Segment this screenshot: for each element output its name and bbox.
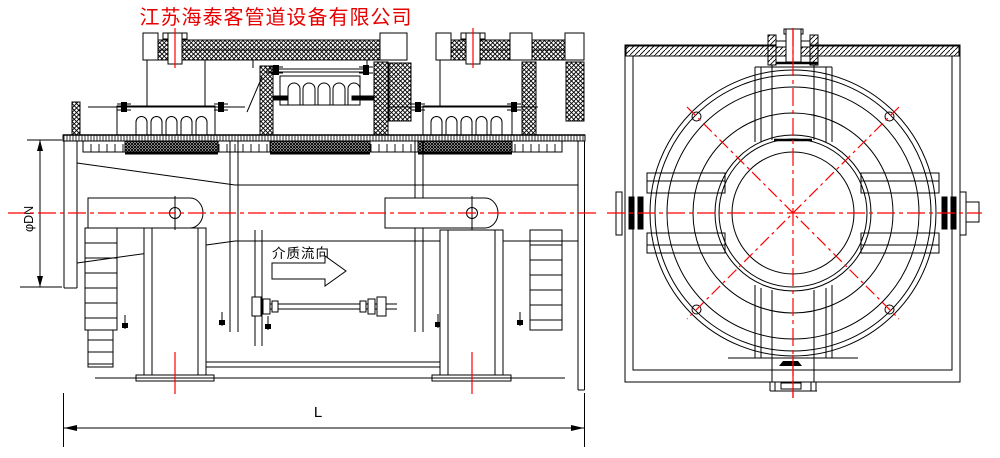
guide-ring-right (530, 230, 562, 330)
drawing-sheet: 江苏海泰客管道设备有限公司 (0, 0, 1000, 458)
dn-dimension-label: φDN (22, 206, 36, 232)
limit-tie-rod (252, 297, 397, 316)
bellows-center-upper (288, 83, 360, 105)
flow-direction-label: 介质流向 (272, 246, 330, 261)
company-title-text: 江苏海泰客管道设备有限公司 (140, 6, 413, 29)
company-title: 江苏海泰客管道设备有限公司 (140, 6, 413, 29)
length-dimension-label: L (314, 404, 322, 421)
guide-ring-left (85, 228, 117, 367)
length-dimension: L (64, 393, 585, 447)
end-view-centerlines (607, 28, 982, 398)
side-section-view: 介质流向 φDN L (20, 33, 585, 447)
bellows-modules (72, 62, 584, 135)
end-view (616, 29, 979, 391)
shell-insulation-band (63, 135, 585, 154)
flow-direction: 介质流向 (272, 246, 346, 286)
bellows-left (136, 117, 207, 136)
drawing-canvas: 江苏海泰客管道设备有限公司 (0, 0, 1000, 458)
bellows-right (431, 117, 502, 136)
